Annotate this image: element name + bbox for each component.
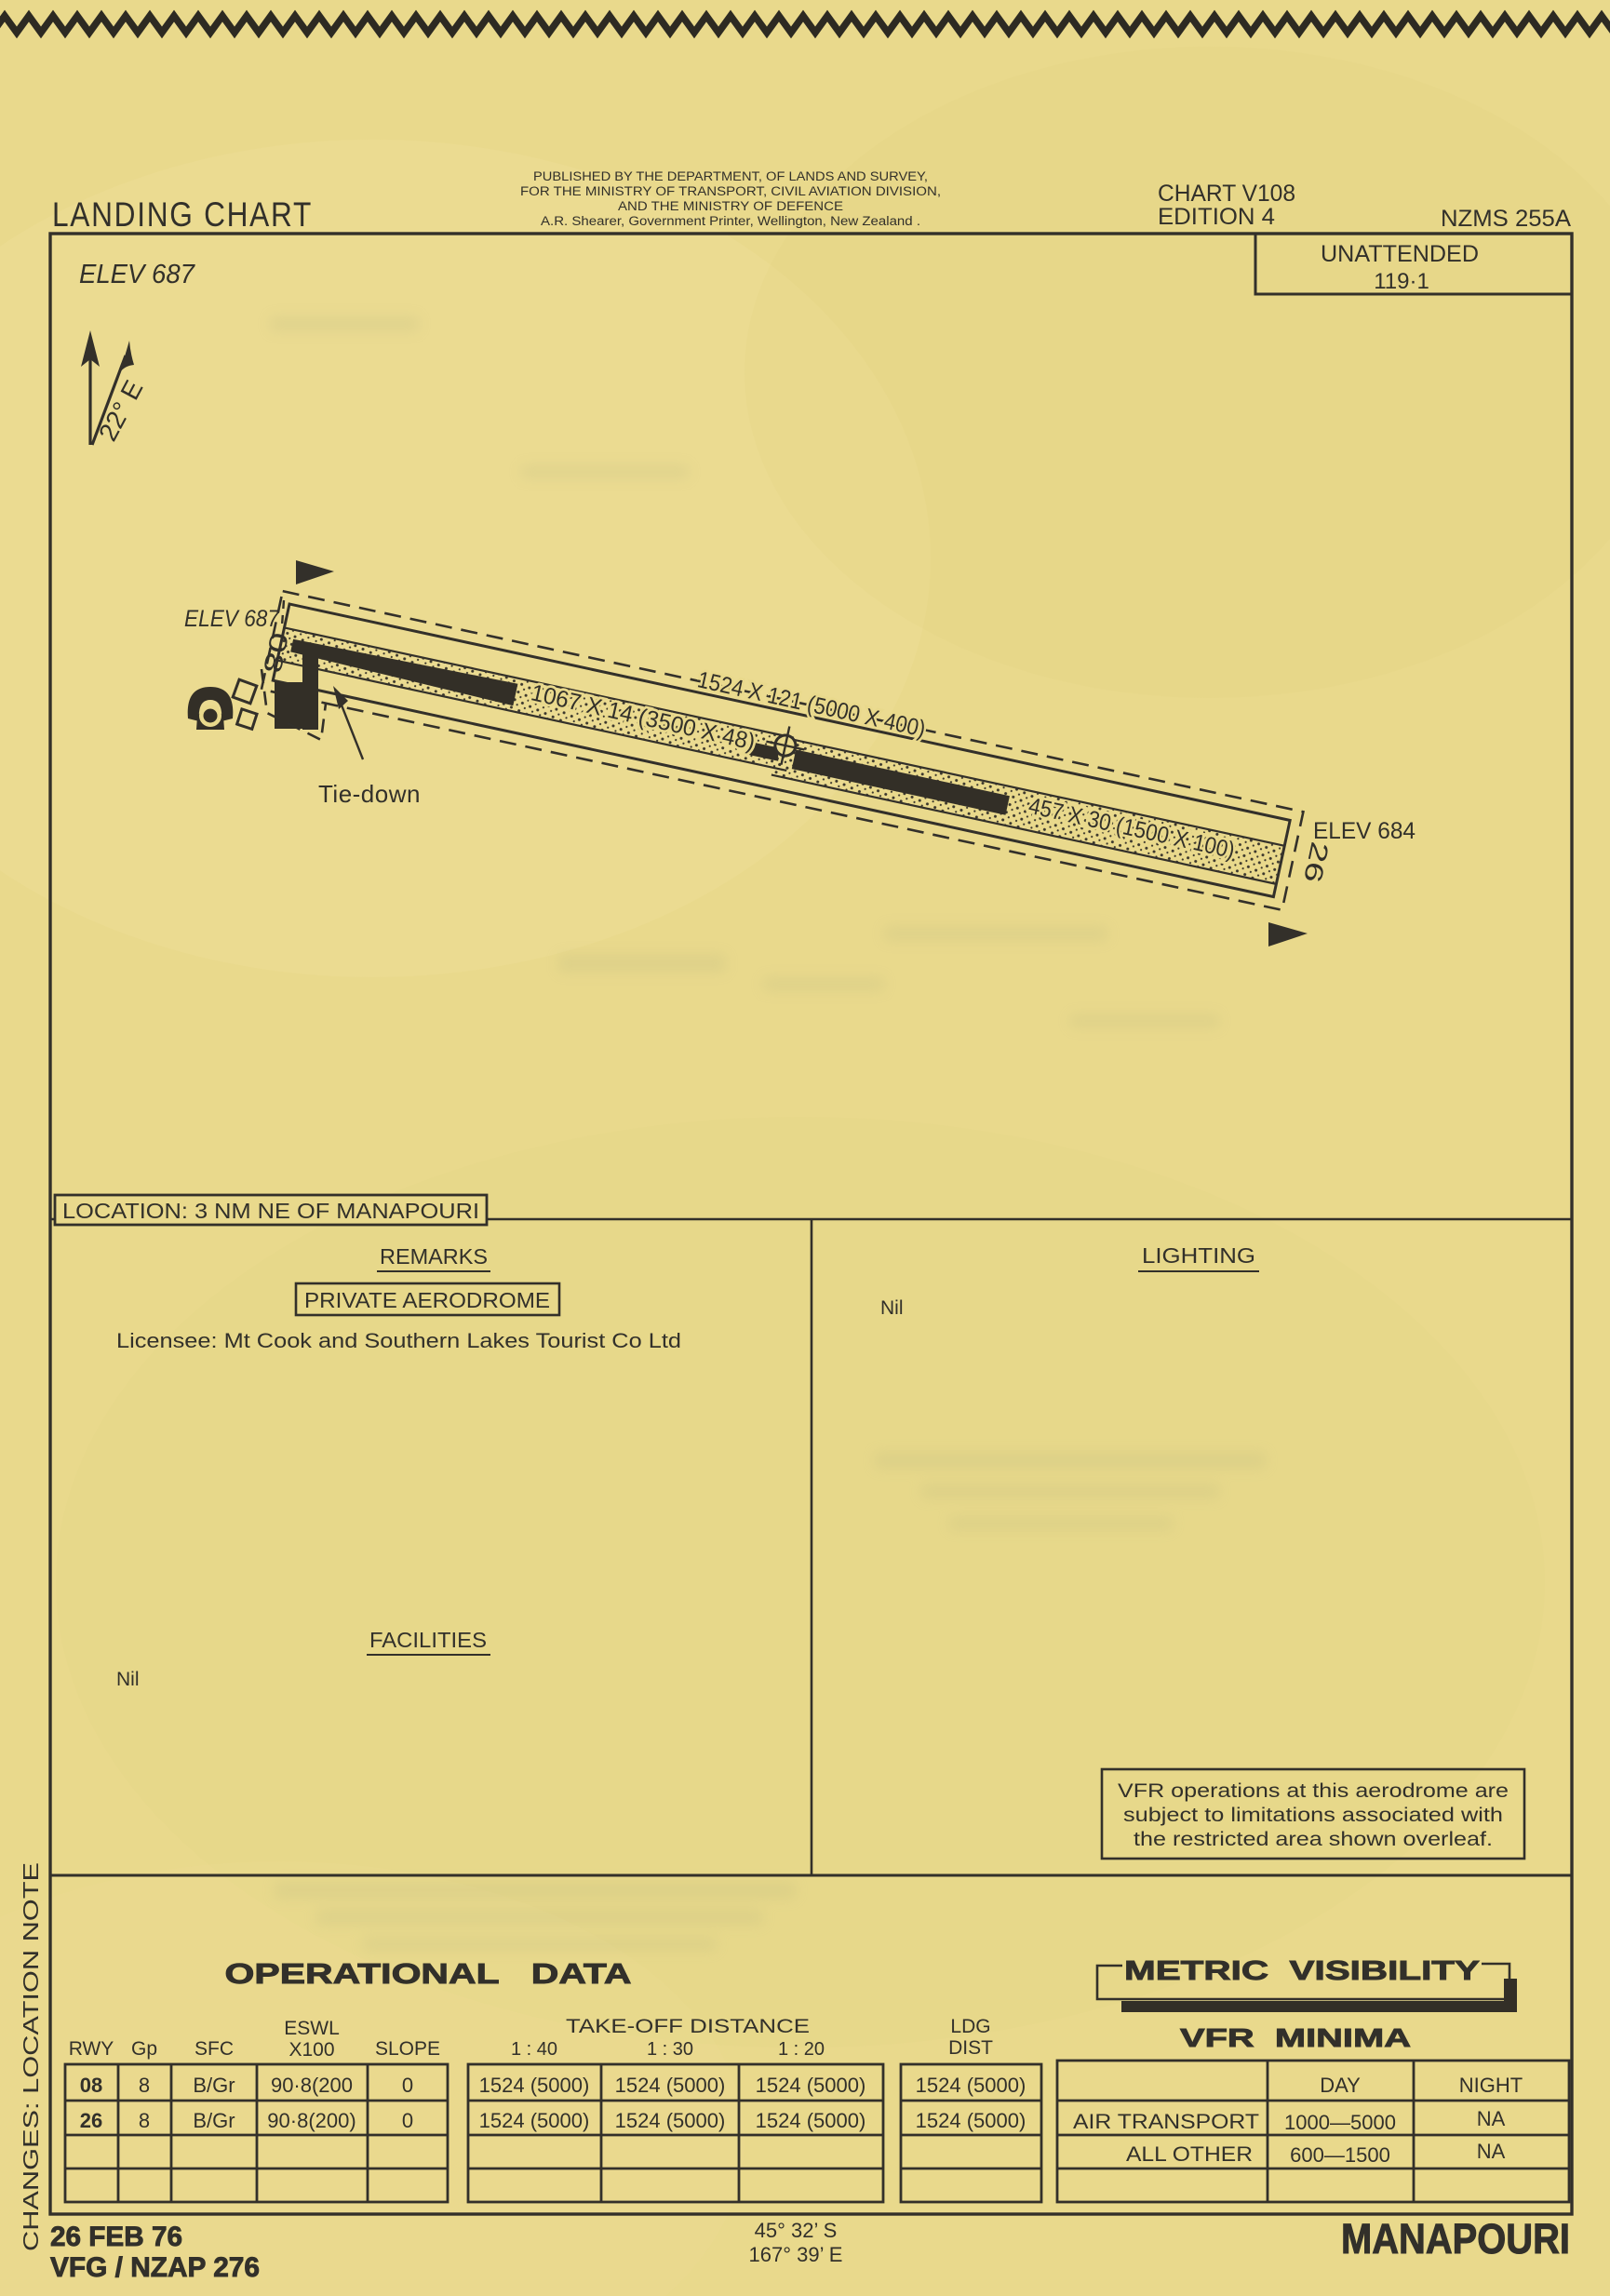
svg-text:ESWL: ESWL xyxy=(284,2018,340,2039)
svg-text:ELEV 687: ELEV 687 xyxy=(79,260,196,289)
svg-text:REMARKS: REMARKS xyxy=(380,1244,488,1269)
svg-text:the restricted area shown over: the restricted area shown overleaf. xyxy=(1134,1829,1493,1850)
svg-text:PRIVATE AERODROME: PRIVATE AERODROME xyxy=(304,1288,550,1312)
svg-text:LIGHTING: LIGHTING xyxy=(1142,1243,1255,1268)
svg-text:B/Gr: B/Gr xyxy=(193,2109,235,2132)
svg-text:0: 0 xyxy=(402,2109,413,2132)
svg-text:1524 (5000): 1524 (5000) xyxy=(916,2109,1026,2132)
svg-text:MANAPOURI: MANAPOURI xyxy=(1341,2215,1570,2262)
svg-text:VFR operations at this aerodro: VFR operations at this aerodrome are xyxy=(1118,1780,1509,1802)
svg-text:ELEV 684: ELEV 684 xyxy=(1313,818,1415,844)
svg-text:ALL OTHER: ALL OTHER xyxy=(1126,2142,1253,2166)
svg-text:FACILITIES: FACILITIES xyxy=(369,1628,487,1652)
svg-text:45° 32’ S: 45° 32’ S xyxy=(755,2219,838,2242)
svg-text:RWY: RWY xyxy=(69,2038,114,2060)
svg-text:Gp: Gp xyxy=(131,2038,157,2060)
svg-text:AND THE MINISTRY OF DEFENC: AND THE MINISTRY OF DEFENCE xyxy=(618,199,843,213)
svg-text:1524 (5000): 1524 (5000) xyxy=(479,2074,590,2097)
svg-text:VFR MINIMA: VFR MINIMA xyxy=(1180,2023,1411,2052)
svg-text:VFG / NZAP 276: VFG / NZAP 276 xyxy=(50,2252,260,2283)
svg-text:LOCATION: 3 NM NE OF MANAPOURI: LOCATION: 3 NM NE OF MANAPOURI xyxy=(62,1199,479,1223)
svg-text:SLOPE: SLOPE xyxy=(375,2038,440,2060)
svg-text:EDITION 4: EDITION 4 xyxy=(1158,204,1275,230)
svg-text:OPERATIONAL DATA: OPERATIONAL DATA xyxy=(225,1957,632,1990)
svg-text:0: 0 xyxy=(402,2074,413,2097)
svg-text:1524 (5000): 1524 (5000) xyxy=(756,2109,866,2132)
svg-text:LDG: LDG xyxy=(950,2016,990,2037)
svg-text:subject to limitations associa: subject to limitations associated with xyxy=(1123,1805,1503,1826)
svg-text:CHANGES: LOCATION NOTE: CHANGES: LOCATION NOTE xyxy=(19,1862,43,2251)
svg-text:1 : 20: 1 : 20 xyxy=(778,2039,825,2060)
svg-text:SFC: SFC xyxy=(195,2038,234,2060)
svg-text:1524 (5000): 1524 (5000) xyxy=(479,2109,590,2132)
svg-text:X100: X100 xyxy=(288,2039,334,2061)
svg-text:CHART V108: CHART V108 xyxy=(1158,181,1295,207)
svg-text:PUBLISHED BY THE DEPARTMENT: PUBLISHED BY THE DEPARTMENT, OF LANDS AN… xyxy=(533,169,928,183)
svg-text:Licensee: Mt Cook and Southern: Licensee: Mt Cook and Southern Lakes Tou… xyxy=(116,1329,681,1352)
svg-text:1 : 30: 1 : 30 xyxy=(647,2039,693,2060)
svg-text:A.R. Shearer, Government Pri: A.R. Shearer, Government Printer, Wellin… xyxy=(541,214,920,228)
svg-text:1 : 40: 1 : 40 xyxy=(511,2039,557,2060)
svg-text:1000—5000: 1000—5000 xyxy=(1284,2111,1396,2134)
svg-text:1524 (5000): 1524 (5000) xyxy=(916,2074,1026,2097)
svg-text:1524 (5000): 1524 (5000) xyxy=(615,2109,726,2132)
svg-text:26 FEB 76: 26 FEB 76 xyxy=(50,2222,182,2252)
svg-text:B/Gr: B/Gr xyxy=(193,2074,235,2097)
svg-text:NIGHT: NIGHT xyxy=(1459,2074,1523,2097)
svg-text:90·8(200: 90·8(200 xyxy=(271,2074,353,2097)
svg-text:TAKE-OFF DISTANCE: TAKE-OFF DISTANCE xyxy=(566,2016,810,2037)
svg-text:Nil: Nil xyxy=(116,1669,140,1690)
svg-text:167° 39’ E: 167° 39’ E xyxy=(749,2243,843,2266)
svg-text:119·1: 119·1 xyxy=(1374,269,1429,294)
svg-text:26: 26 xyxy=(80,2109,102,2132)
svg-text:1524 (5000): 1524 (5000) xyxy=(756,2074,866,2097)
svg-text:Nil: Nil xyxy=(880,1297,904,1319)
svg-text:600—1500: 600—1500 xyxy=(1290,2143,1390,2167)
svg-text:METRIC VISIBILITY: METRIC VISIBILITY xyxy=(1124,1956,1480,1986)
svg-text:NA: NA xyxy=(1477,2107,1506,2130)
svg-text:AIR TRANSPORT: AIR TRANSPORT xyxy=(1073,2110,1259,2133)
svg-text:UNATTENDED: UNATTENDED xyxy=(1321,241,1479,267)
svg-text:8: 8 xyxy=(139,2109,150,2132)
svg-text:08: 08 xyxy=(80,2074,102,2097)
svg-text:LANDING CHART: LANDING CHART xyxy=(52,195,313,234)
svg-text:DIST: DIST xyxy=(948,2037,993,2059)
svg-text:ELEV 687: ELEV 687 xyxy=(184,606,280,632)
svg-text:1524 (5000): 1524 (5000) xyxy=(615,2074,726,2097)
svg-text:NZMS 255A: NZMS 255A xyxy=(1441,206,1571,232)
svg-text:FOR THE MINISTRY OF TRANSP: FOR THE MINISTRY OF TRANSPORT, CIVIL AVI… xyxy=(520,184,941,198)
svg-text:DAY: DAY xyxy=(1320,2074,1361,2097)
svg-text:8: 8 xyxy=(139,2074,150,2097)
svg-text:90·8(200): 90·8(200) xyxy=(267,2109,356,2132)
svg-text:Tie-down: Tie-down xyxy=(318,780,421,808)
svg-text:NA: NA xyxy=(1477,2140,1506,2163)
